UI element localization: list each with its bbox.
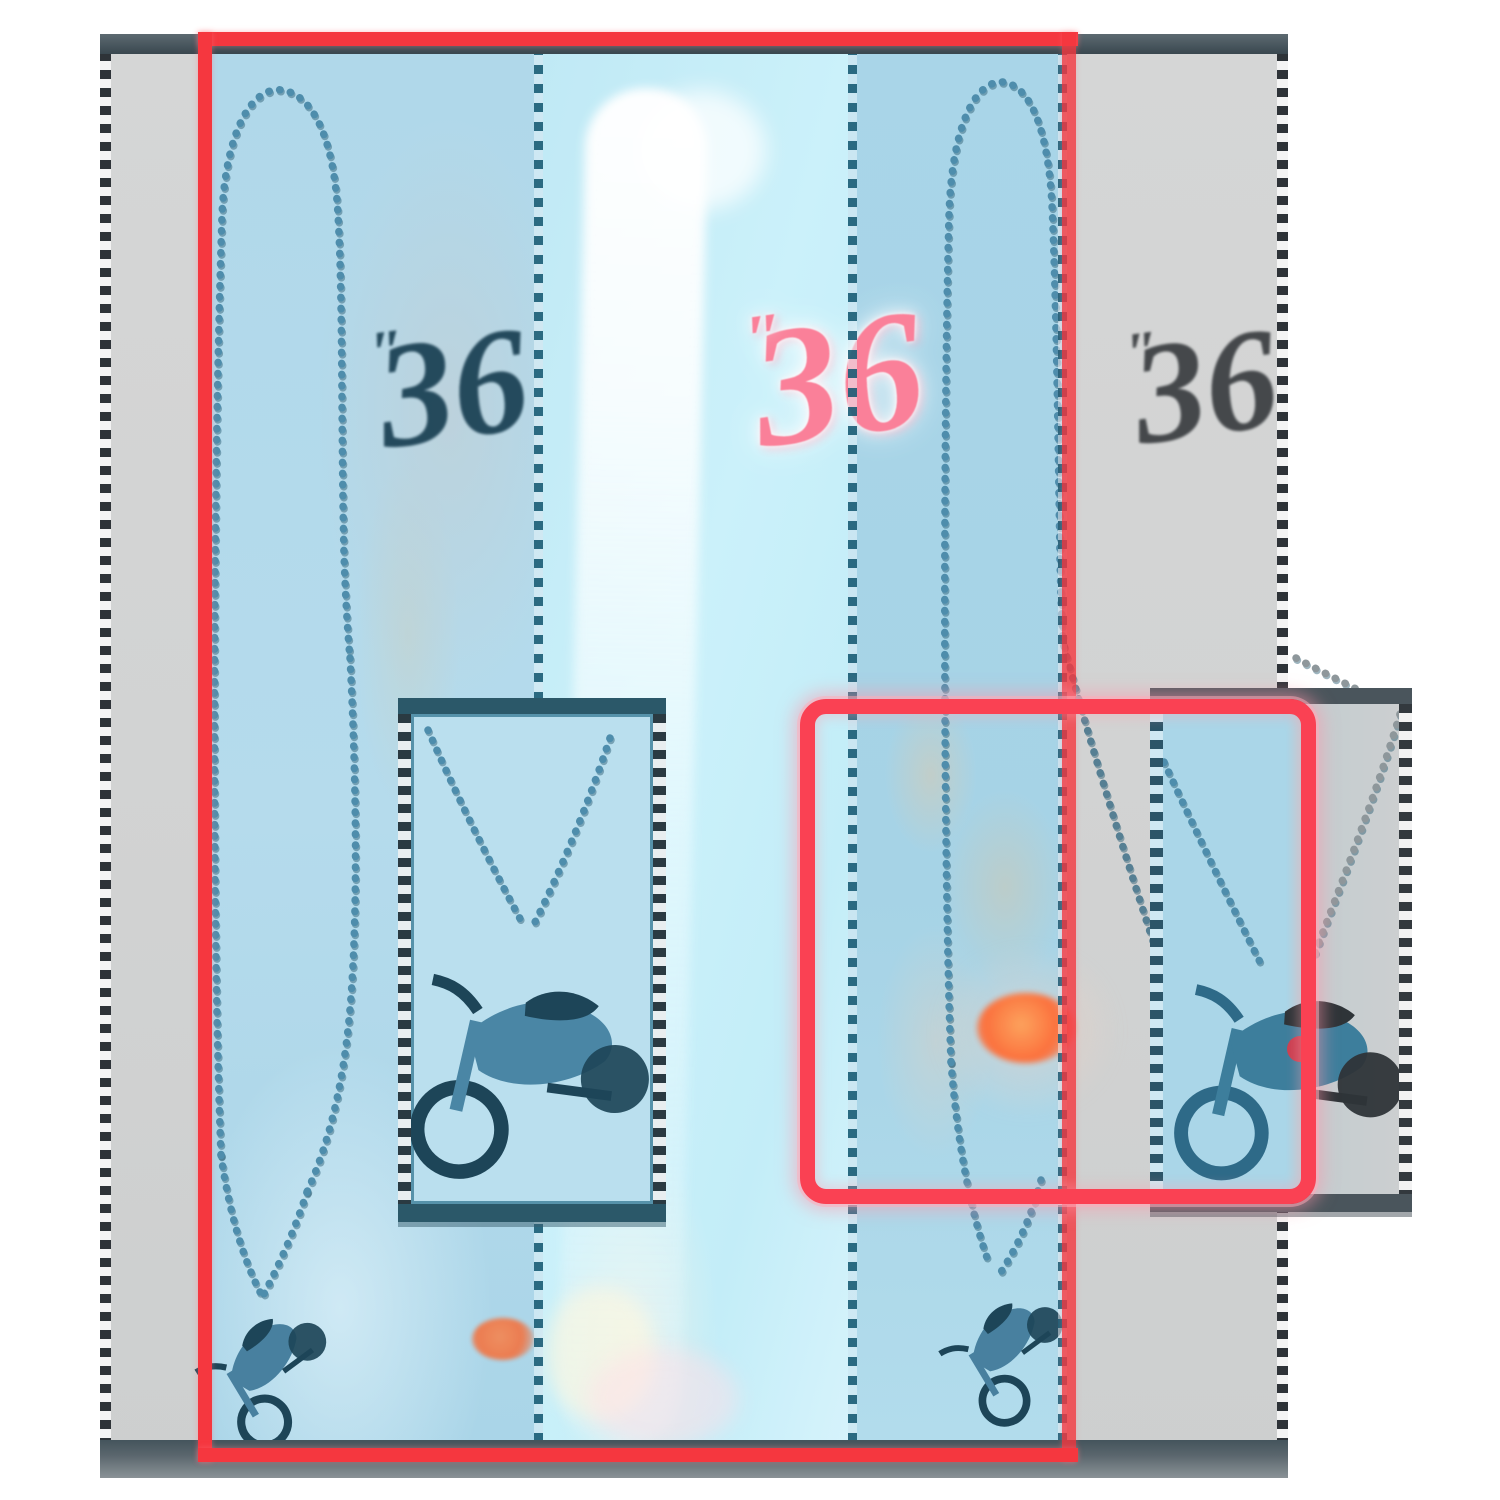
gloss-highlight-blob — [636, 90, 766, 210]
pendant-closeup-left — [398, 714, 666, 1204]
measure-rectangle-bottom — [198, 1448, 1078, 1462]
necklace-size-chart-image: 36″ 36″ 36″ — [0, 0, 1500, 1500]
glare-spot-left — [472, 1318, 534, 1360]
zoom-inset-box-left — [398, 698, 666, 1222]
measure-rectangle-top — [198, 32, 1078, 46]
ball-chain-icon — [1296, 658, 1362, 692]
measure-rectangle-left — [198, 32, 212, 1462]
light-wisp-pink — [588, 1348, 738, 1448]
inset-dashed-edge — [1399, 704, 1412, 1194]
inset-dashed-edge — [398, 714, 411, 1204]
highlight-rectangle — [800, 699, 1316, 1204]
card-dashed-border-left — [100, 34, 111, 1478]
inset-dashed-edge — [653, 714, 666, 1204]
